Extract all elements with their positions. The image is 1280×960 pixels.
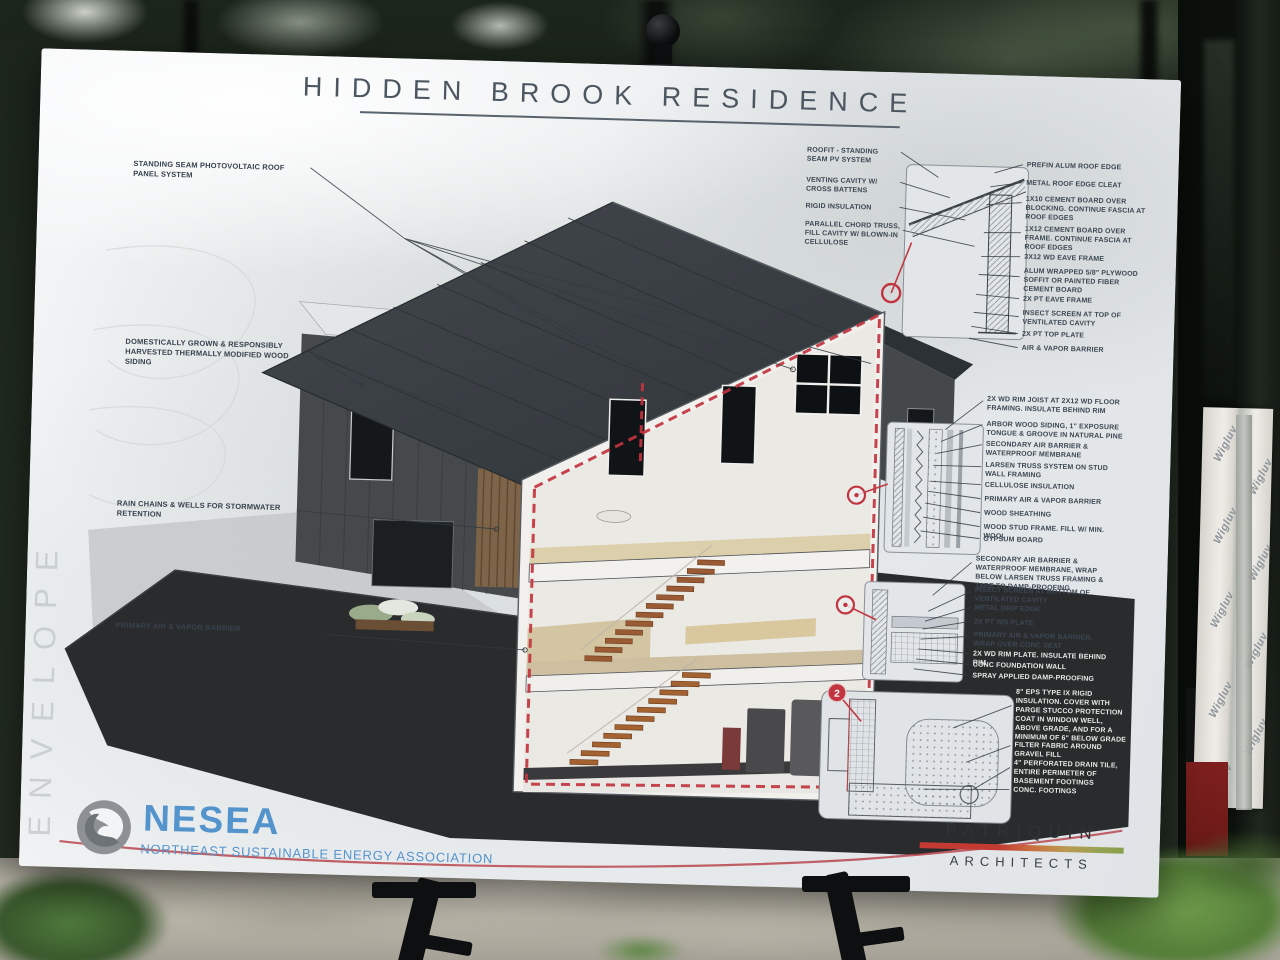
plinth-detail [862,581,965,682]
basement-box [722,728,741,770]
tape-brand-text: Wigluv [1208,590,1237,630]
nesea-swirl-icon [74,797,134,857]
clerestory-window [608,399,646,476]
callout-roofit: ROOFIT - STANDING SEAM PV SYSTEM [807,146,901,167]
callout-1x12-board: 1X12 CEMENT BOARD OVER FRAME. CONTINUE F… [1024,225,1149,256]
poster-board: HIDDEN BROOK RESIDENCE ENVELOPE [19,48,1181,898]
grass-right-dark [1180,830,1280,900]
marker-number: 2 [834,689,840,700]
wall-detail [884,422,984,555]
grass-left [0,868,170,960]
tree-trunk [180,0,202,60]
easel-knob [646,14,680,48]
callout-rim-joist: 2X WD RIM JOIST AT 2X12 WD FLOOR FRAMING… [987,395,1125,417]
callout-1x10-board: 1X10 CEMENT BOARD OVER BLOCKING. CONTINU… [1025,195,1150,226]
heat-pump [746,708,786,773]
wing-door [372,520,454,588]
grass-center [596,934,686,960]
callout-alum-soffit: ALUM WRAPPED 5/8" PLYWOOD SOFFIT OR PAIN… [1023,267,1148,298]
foundation-detail [818,690,1013,823]
callout-secondary-ab: SECONDARY AIR BARRIER & WATERPROOF MEMBR… [986,440,1124,462]
loft-window [720,385,756,464]
callout-venting: VENTING CAVITY W/ CROSS BATTENS [806,176,900,197]
callout-arbor-siding: ARBOR WOOD SIDING, 1" EXPOSURE TONGUE & … [986,420,1124,442]
glass-reflection [1204,40,1234,400]
callout-eps-insul: 8" EPS TYPE IX RIGID INSULATION. COVER W… [1015,688,1130,746]
callout-larsen-truss: LARSEN TRUSS SYSTEM ON STUD WALL FRAMING [985,461,1123,483]
callout-drain-tile: 4" PERFORATED DRAIN TILE, ENTIRE PERIMET… [1013,759,1128,789]
nesea-name: NESEA [143,799,281,840]
site-contour-lines [87,244,257,510]
callout-chord-truss: PARALLEL CHORD TRUSS, FILL CAVITY W/ BLO… [804,220,903,250]
roof-eave-detail [902,164,1029,339]
callout-insect-top: INSECT SCREEN AT TOP OF VENTILATED CAVIT… [1022,309,1146,331]
nesea-logo: NESEA NORTHEAST SUSTAINABLE ENERGY ASSOC… [74,797,281,861]
photo-scene: Wigluv Wigluv Wigluv Wigluv Wigluv Wiglu… [0,0,1280,960]
callout-wood-siding: DOMESTICALLY GROWN & RESPONSIBLY HARVEST… [125,337,316,372]
easel-clamp-right [802,876,910,892]
window-metal-frame [1236,415,1252,810]
grid-window [795,353,863,415]
construction-tape-strip: Wigluv Wigluv Wigluv Wigluv Wigluv Wiglu… [1193,407,1273,809]
patriquin-logo: PATRIQUIN ARCHITECTS [917,819,1126,873]
tape-brand-text: Wigluv [1207,680,1236,720]
